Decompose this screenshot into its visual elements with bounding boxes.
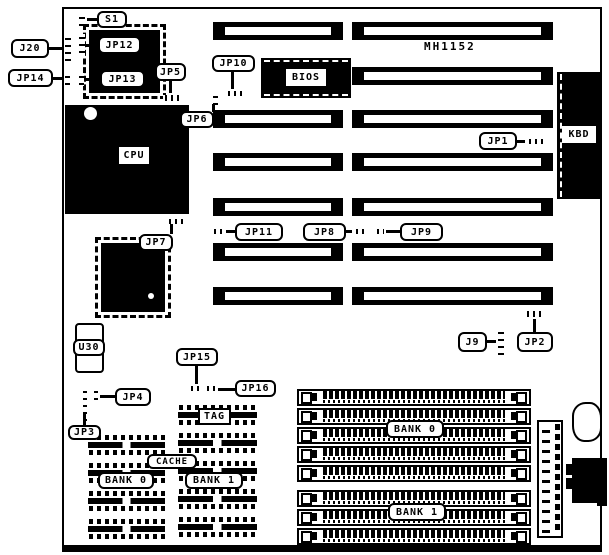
jumper-j9 — [496, 327, 506, 358]
cache-sram-chip — [85, 489, 168, 513]
callout-jp11: JP11 — [235, 223, 283, 241]
callout-j20: J20 — [11, 39, 49, 58]
jumper-jp16 — [203, 384, 218, 393]
simm-bank1-label: BANK 1 — [388, 503, 446, 521]
callout-jp10: JP10 — [212, 55, 255, 72]
callout-tail — [533, 319, 536, 332]
isa-slot — [213, 110, 343, 128]
cache-sram-chip — [85, 517, 168, 541]
callout-j9: J9 — [458, 332, 487, 352]
isa-slot — [352, 153, 553, 171]
callout-jp14: JP14 — [8, 69, 53, 87]
callout-jp6: JP6 — [180, 111, 214, 128]
jumper-jp4-b — [92, 386, 100, 407]
cache-sram-chip — [175, 431, 260, 455]
isa-slot — [213, 198, 343, 216]
isa-slot — [213, 287, 343, 305]
callout-jp5: JP5 — [155, 63, 186, 81]
callout-jp15: JP15 — [176, 348, 218, 366]
callout-tail — [86, 78, 100, 81]
cache-bank0-label: BANK 0 — [98, 472, 154, 489]
kbd-label: KBD — [562, 126, 596, 143]
callout-jp9: JP9 — [400, 223, 443, 241]
callout-tail — [231, 72, 234, 89]
callout-tag: TAG — [198, 408, 231, 425]
jumper-jp14 — [63, 71, 72, 87]
callout-tail — [195, 366, 198, 384]
callout-tail — [517, 140, 525, 143]
jumper-j20 — [63, 33, 73, 67]
callout-tail — [218, 388, 235, 391]
callout-tail — [53, 77, 63, 80]
jumper-jp9 — [373, 227, 386, 236]
callout-jp7: JP7 — [139, 234, 173, 251]
simm-socket — [297, 528, 531, 545]
callout-tail — [212, 104, 215, 112]
cpu-pin1-dot — [84, 107, 97, 120]
callout-u30: U30 — [73, 339, 105, 356]
callout-jp13: JP13 — [100, 70, 145, 88]
callout-tail — [100, 395, 115, 398]
cache-sram-chip — [175, 487, 260, 511]
component-outline — [572, 402, 602, 442]
jumper-jp13 — [77, 71, 86, 88]
isa-slot — [352, 67, 553, 85]
motherboard-diagram: MH1152 CPU BIOS KBD U30 TAG CACHE BANK 0… — [0, 0, 609, 555]
callout-tail — [170, 224, 173, 234]
simm-socket — [297, 465, 531, 482]
isa-slot — [352, 243, 553, 261]
din-connector-tab — [566, 478, 572, 489]
din-connector-tab — [566, 464, 572, 475]
isa-slot — [352, 287, 553, 305]
jumper-s1 — [77, 12, 87, 28]
jumper-jp11 — [210, 227, 226, 236]
isa-slot — [352, 198, 553, 216]
cache-sram-chip — [175, 515, 260, 539]
jumper-jp1 — [525, 137, 545, 146]
callout-tail — [346, 230, 352, 233]
callout-jp1: JP1 — [479, 132, 517, 150]
callout-tail — [487, 340, 496, 343]
isa-slot — [213, 153, 343, 171]
callout-tail — [49, 47, 63, 50]
callout-tail — [386, 230, 400, 233]
isa-slot — [352, 22, 553, 40]
isa-slot — [213, 243, 343, 261]
jumper-jp8 — [352, 227, 370, 236]
cache-area-label: CACHE — [147, 454, 197, 469]
callout-jp12: JP12 — [98, 36, 141, 54]
callout-jp8: JP8 — [303, 223, 346, 241]
callout-tail — [226, 230, 235, 233]
power-connector — [537, 420, 563, 538]
callout-jp4: JP4 — [115, 388, 151, 406]
jumper-jp7 — [165, 217, 187, 226]
jumper-jp5 — [161, 93, 184, 103]
isa-slot — [352, 110, 553, 128]
cache-bank1-label: BANK 1 — [185, 472, 243, 489]
qfp-chip — [101, 243, 165, 312]
simm-socket — [297, 389, 531, 406]
callout-tail — [87, 18, 97, 21]
isa-slot — [213, 22, 343, 40]
callout-jp16: JP16 — [235, 380, 276, 397]
din-connector-foot — [597, 492, 607, 506]
simm-bank0-label: BANK 0 — [386, 420, 444, 438]
callout-jp2: JP2 — [517, 332, 553, 352]
jumper-jp2 — [523, 309, 546, 319]
jumper-jp15 — [187, 384, 202, 393]
bios-label: BIOS — [286, 69, 326, 86]
callout-tail — [86, 44, 98, 47]
callout-jp3: JP3 — [68, 425, 101, 440]
callout-tail — [83, 413, 86, 425]
chip-pin1-dot — [148, 293, 154, 299]
callout-tail — [169, 81, 172, 93]
board-model-text: MH1152 — [424, 40, 476, 53]
callout-s1: S1 — [97, 11, 127, 28]
jumper-jp10 — [224, 89, 245, 98]
cpu-label: CPU — [119, 147, 149, 164]
simm-socket — [297, 446, 531, 463]
